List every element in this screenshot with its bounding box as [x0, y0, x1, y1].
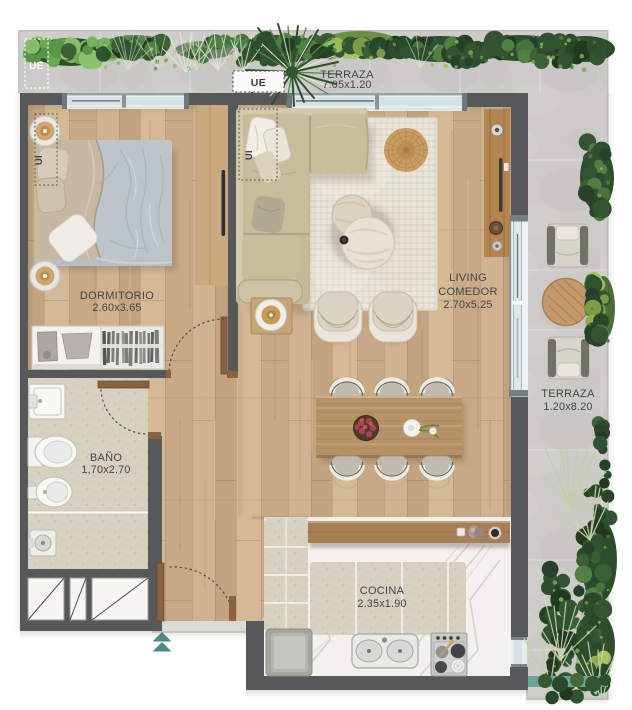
svg-text:UI: UI: [244, 150, 254, 160]
svg-text:DORMITORIO: DORMITORIO: [80, 290, 154, 302]
svg-text:UE: UE: [29, 61, 43, 72]
svg-text:1.20x8.20: 1.20x8.20: [543, 401, 592, 413]
svg-text:BAÑO: BAÑO: [90, 451, 123, 464]
svg-text:2.60x3.65: 2.60x3.65: [92, 302, 141, 314]
svg-text:2.35x1.90: 2.35x1.90: [357, 598, 406, 610]
svg-text:UI: UI: [34, 155, 44, 165]
svg-text:COCINA: COCINA: [360, 585, 405, 597]
svg-text:UE: UE: [251, 77, 267, 89]
svg-text:TERRAZA: TERRAZA: [541, 388, 595, 400]
svg-text:2.70x5.25: 2.70x5.25: [443, 299, 492, 311]
svg-text:COMEDOR: COMEDOR: [438, 286, 498, 298]
svg-text:7.05x1.20: 7.05x1.20: [322, 79, 371, 91]
svg-text:1,70x2.70: 1,70x2.70: [81, 464, 130, 476]
svg-text:LIVING: LIVING: [449, 272, 487, 284]
